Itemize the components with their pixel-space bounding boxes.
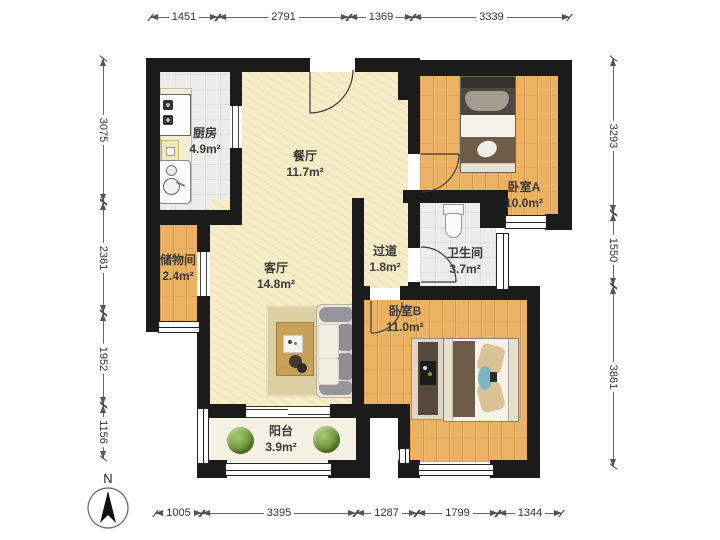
dresser-tv <box>411 338 446 420</box>
wall-segment <box>146 58 160 332</box>
bed-a-footboard <box>461 163 515 172</box>
dim-top-2: 2791 <box>218 11 349 23</box>
wall-segment <box>146 210 242 225</box>
bed-b-footboard <box>444 339 453 421</box>
wall-segment <box>527 288 540 478</box>
dim-value: 3293 <box>607 120 619 150</box>
coffee-table <box>276 322 314 376</box>
hallway-label: 过道 1.8m² <box>345 244 425 275</box>
bed-b-blanket <box>453 341 475 417</box>
dim-right-3: 3861 <box>607 286 619 467</box>
sofa-back-cushion <box>337 353 353 380</box>
wall-segment <box>545 214 572 230</box>
window <box>158 321 200 333</box>
dim-left-3: 1952 <box>97 313 109 405</box>
tv <box>420 361 436 385</box>
room-name: 储物间 <box>160 253 196 269</box>
wall-segment <box>230 72 242 108</box>
dim-left-2: 2361 <box>97 202 109 313</box>
bed-b-headboard <box>508 339 518 421</box>
bedroom-b-floor-lower <box>410 418 527 462</box>
dim-value: 2791 <box>268 11 298 23</box>
dim-bottom-5: 1344 <box>498 507 562 519</box>
room-name: 卫生间 <box>447 246 483 262</box>
toilet <box>443 204 464 238</box>
room-area: 3.9m² <box>265 440 296 456</box>
wall-segment <box>490 460 540 478</box>
wall-segment <box>400 286 540 300</box>
sofa-armrest <box>319 307 353 322</box>
wall-segment <box>352 286 370 300</box>
balcony-sliding-door <box>246 406 330 418</box>
floor-plan-canvas: 厨房 4.9m² 餐厅 11.7m² 卧室A 10.0m² 储物间 2.4m² … <box>0 0 720 540</box>
room-name: 卧室A <box>508 180 541 196</box>
wall-segment <box>408 282 420 300</box>
room-name: 过道 <box>373 244 397 260</box>
kitchen-sink <box>158 160 191 204</box>
north-label: N <box>103 472 112 485</box>
bedroom-a-label: 卧室A 10.0m² <box>474 180 574 211</box>
dim-bottom-3: 1287 <box>356 507 417 519</box>
compass-icon <box>87 487 129 529</box>
dim-top-1: 1451 <box>150 11 218 23</box>
dim-value: 3395 <box>264 507 294 519</box>
dim-value: 1005 <box>163 507 193 519</box>
room-name: 卧室B <box>389 304 422 320</box>
dim-bottom-1: 1005 <box>155 507 202 519</box>
dim-value: 1156 <box>97 417 109 447</box>
sofa-seat <box>318 358 339 385</box>
room-area: 1.8m² <box>369 260 400 276</box>
balcony-label: 阳台 3.9m² <box>241 424 321 455</box>
dim-value: 2361 <box>97 242 109 272</box>
dim-left-1: 3075 <box>97 58 109 202</box>
window <box>399 448 410 464</box>
window <box>197 408 209 464</box>
bedroom-b-label: 卧室B 11.0m² <box>355 304 455 335</box>
bathroom-label: 卫生间 3.7m² <box>425 246 505 277</box>
window <box>418 464 494 476</box>
room-name: 餐厅 <box>293 149 317 165</box>
dim-value: 1451 <box>169 11 199 23</box>
dim-bottom-2: 3395 <box>202 507 356 519</box>
dim-bottom-4: 1799 <box>417 507 498 519</box>
window <box>225 463 332 476</box>
dim-top-4: 3339 <box>413 11 570 23</box>
wall-segment <box>197 210 210 252</box>
dim-value: 1550 <box>607 234 619 264</box>
room-area: 11.7m² <box>286 165 323 181</box>
dining-label: 餐厅 11.7m² <box>255 149 355 180</box>
north-compass: N <box>85 472 131 529</box>
dim-right-1: 3293 <box>607 58 619 213</box>
room-area: 10.0m² <box>505 196 543 212</box>
room-area: 14.8m² <box>257 277 295 293</box>
dim-top-3: 1369 <box>349 11 413 23</box>
kitchen-label: 厨房 4.9m² <box>165 126 245 157</box>
sofa-seat <box>318 324 339 359</box>
bed-a <box>460 76 516 173</box>
wall-segment <box>398 404 410 450</box>
dim-value: 3075 <box>97 115 109 145</box>
wall-segment <box>146 58 310 72</box>
bed-a-headboard <box>461 77 515 88</box>
dim-left-4: 1156 <box>97 405 109 459</box>
dim-value: 3861 <box>607 361 619 391</box>
wall-segment <box>412 60 572 76</box>
living-label: 客厅 14.8m² <box>226 261 326 292</box>
sofa-back-cushion <box>337 324 353 351</box>
window <box>505 215 547 229</box>
room-name: 阳台 <box>269 424 293 440</box>
room-area: 2.4m² <box>162 269 193 285</box>
dim-right-2: 1550 <box>607 213 619 286</box>
room-area: 3.7m² <box>449 262 480 278</box>
wall-segment <box>328 460 370 478</box>
room-name: 厨房 <box>193 126 217 142</box>
storage-label: 储物间 2.4m² <box>140 253 216 284</box>
wall-segment <box>197 330 210 408</box>
dim-value: 1344 <box>515 507 545 519</box>
wall-segment <box>408 98 420 154</box>
bed-a-pillow <box>465 91 509 111</box>
room-name: 客厅 <box>264 261 288 277</box>
bed-b <box>443 338 519 422</box>
dining-floor <box>242 72 408 202</box>
room-area: 11.0m² <box>386 320 423 336</box>
dim-value: 1952 <box>97 344 109 374</box>
dim-value: 1799 <box>442 507 472 519</box>
dim-value: 1287 <box>371 507 401 519</box>
room-area: 4.9m² <box>189 142 220 158</box>
dim-value: 1369 <box>366 11 396 23</box>
dim-value: 3339 <box>476 11 506 23</box>
